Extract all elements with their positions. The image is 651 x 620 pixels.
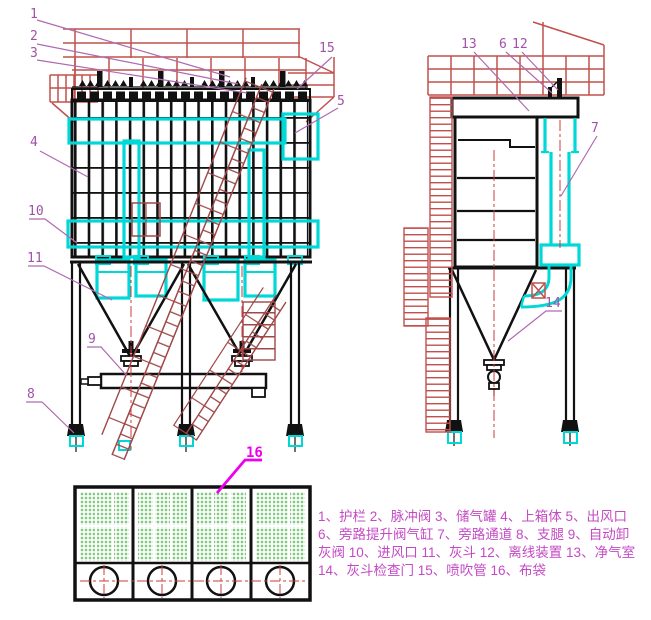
callout-5: 5 [337, 95, 345, 108]
callout-15: 15 [319, 42, 335, 55]
legend-line-2: 6、旁路提升阀气缸 7、旁路通道 8、支腿 9、自动卸 [318, 526, 648, 544]
callout-13: 13 [461, 38, 477, 51]
callout-7: 7 [591, 122, 599, 135]
callout-2: 2 [30, 30, 38, 43]
front-view [50, 29, 334, 460]
callout-8: 8 [27, 388, 35, 401]
callout-6: 6 [499, 38, 507, 51]
callout-16: 16 [246, 446, 263, 460]
callout-9: 9 [88, 333, 96, 346]
screw-conveyor [81, 374, 266, 397]
legend-line-1: 1、护栏 2、脉冲阀 3、储气罐 4、上箱体 5、出风口 [318, 508, 648, 526]
side-ladder [404, 97, 452, 432]
callout-14: 14 [545, 297, 561, 310]
callout-10: 10 [28, 205, 44, 218]
callout-1: 1 [30, 8, 38, 21]
clean-air-chamber [452, 98, 578, 267]
side-hopper [448, 268, 576, 396]
legend-line-3: 灰阀 10、进风口 11、灰斗 12、离线装置 13、净气室 [318, 544, 648, 562]
callout-12: 12 [512, 38, 528, 51]
side-guardrail [428, 22, 604, 95]
legend-line-4: 14、灰斗检查门 15、喷吹管 16、布袋 [318, 562, 648, 580]
parts-legend: 1、护栏 2、脉冲阀 3、储气罐 4、上箱体 5、出风口 6、旁路提升阀气缸 7… [318, 508, 648, 580]
callout-3: 3 [30, 47, 38, 60]
callout-11: 11 [27, 252, 43, 265]
bottom-detail-view [75, 487, 310, 600]
side-legs [445, 268, 579, 446]
cad-drawing-page: 1 2 3 4 5 6 7 8 9 10 11 12 13 14 15 16 1… [0, 0, 651, 620]
callout-4: 4 [30, 136, 38, 149]
side-view [404, 22, 604, 446]
